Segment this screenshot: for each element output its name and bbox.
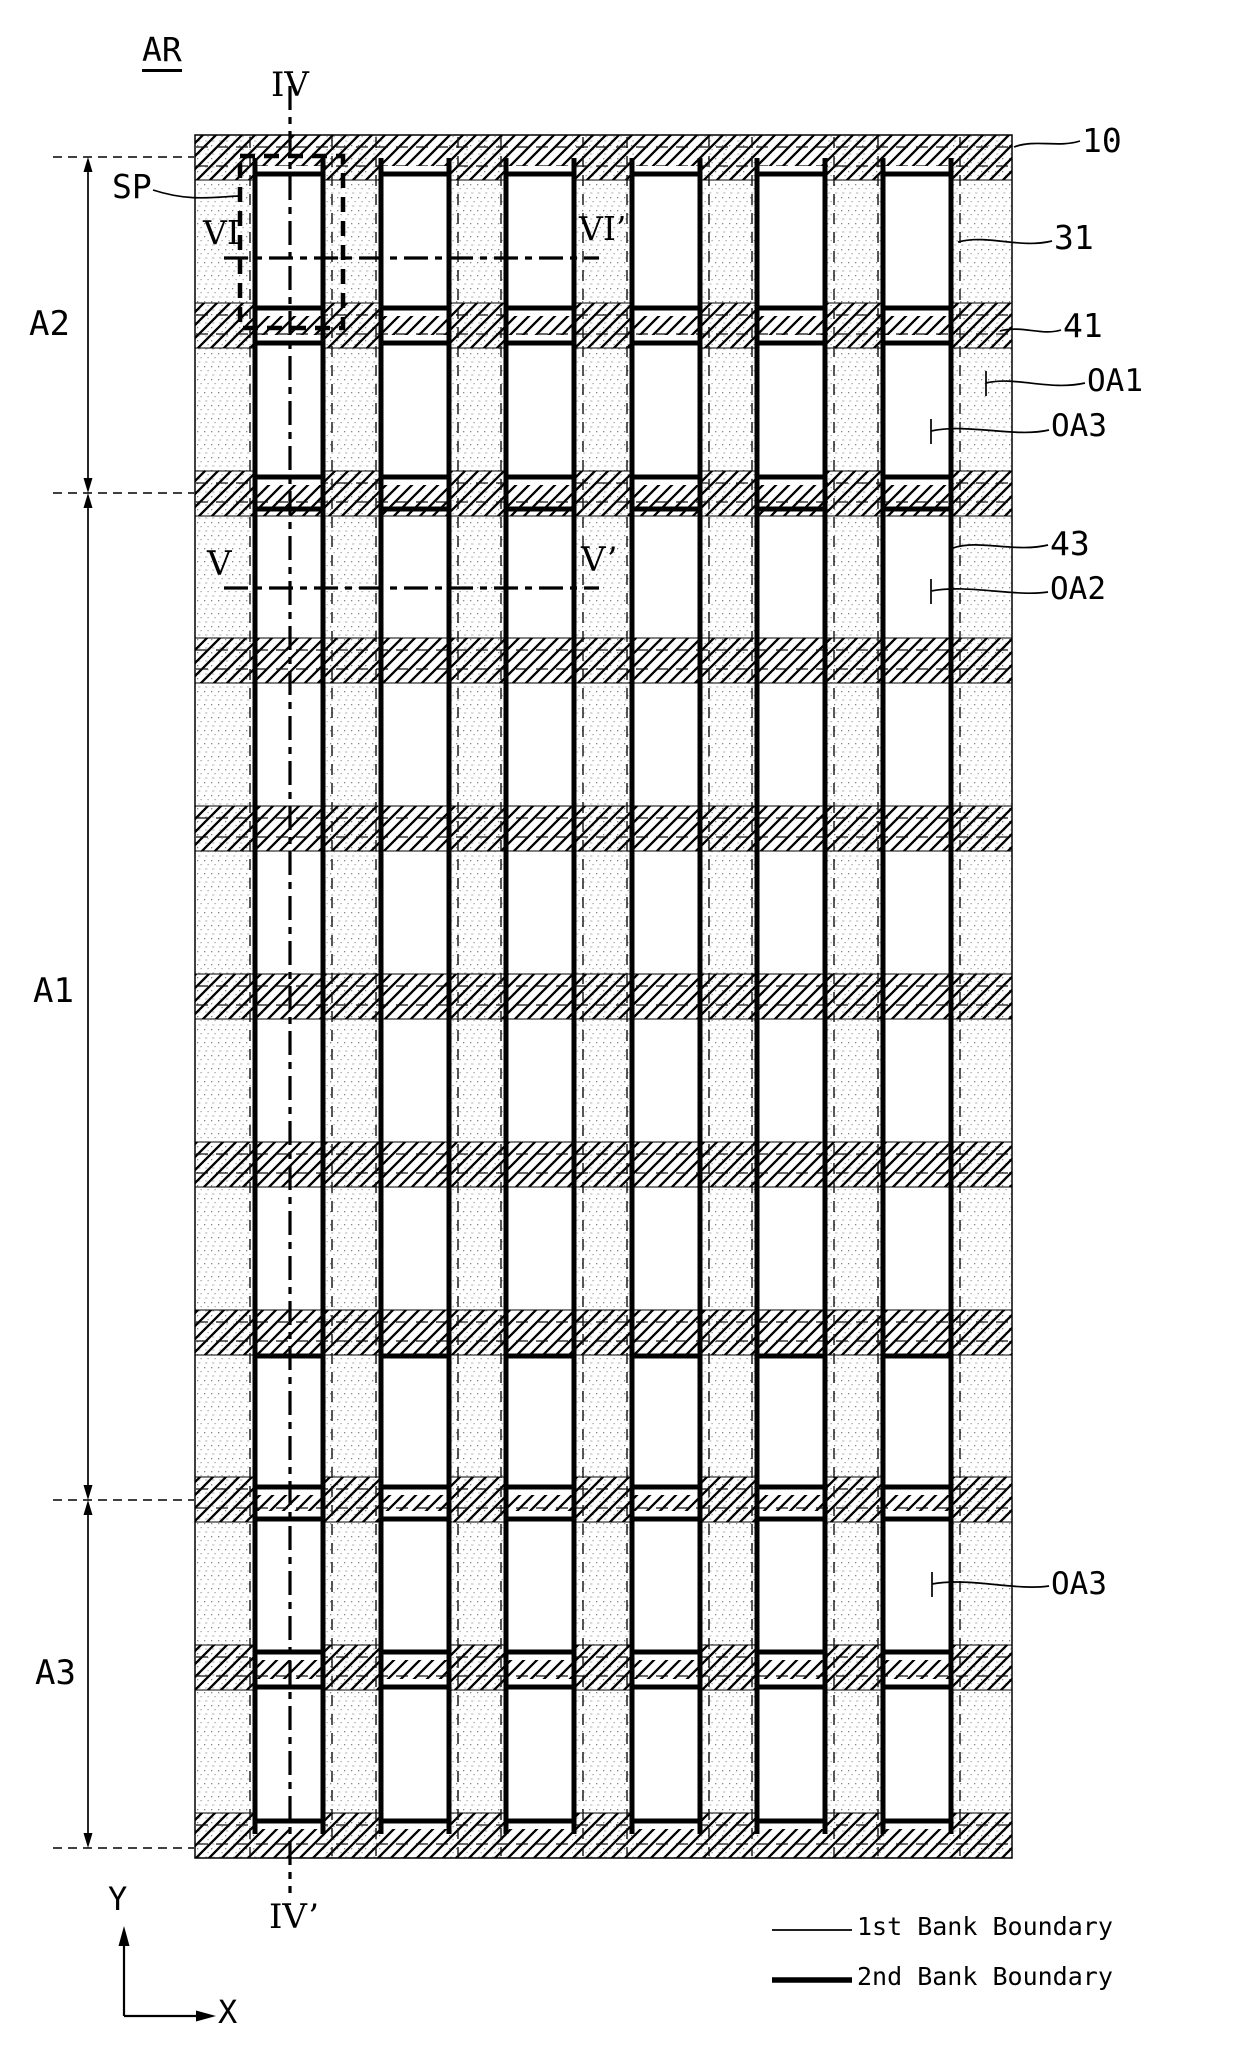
region-label-A1: A1 — [33, 974, 74, 1008]
callout-OA2: OA2 — [1050, 574, 1106, 605]
y-axis-label: Y — [108, 1883, 127, 1915]
region-label-A3: A3 — [35, 1656, 76, 1690]
subpixel-label: SP — [112, 170, 152, 203]
display-area-diagram — [0, 0, 1240, 2068]
leader-10 — [1014, 141, 1080, 147]
section-marker-V: V — [207, 547, 232, 581]
section-marker-IV-prime: IV’ — [269, 1900, 319, 1934]
callout-OA1: OA1 — [1087, 366, 1143, 397]
xy-axis-indicator — [119, 1926, 217, 2022]
callout-10: 10 — [1082, 124, 1122, 157]
x-axis-label: X — [218, 1996, 237, 2028]
callout-31: 31 — [1054, 221, 1094, 254]
y-axis-arrow-icon — [119, 1926, 130, 1946]
section-marker-VI-prime: VI’ — [579, 212, 626, 245]
section-marker-IV: IV — [271, 68, 309, 102]
callout-OA3-lower: OA3 — [1051, 1569, 1107, 1600]
callout-OA3-upper: OA3 — [1051, 411, 1107, 442]
region-dimension-lines — [53, 157, 194, 1848]
region-label-A2: A2 — [29, 307, 70, 341]
legend-item-first-bank: 1st Bank Boundary — [857, 1914, 1113, 1939]
callout-43: 43 — [1050, 527, 1090, 560]
figure-title: AR — [142, 33, 182, 72]
legend-item-second-bank: 2nd Bank Boundary — [857, 1964, 1113, 1989]
patent-figure-page: AR SP IV IV’ VI VI’ V V’ A2 A1 A3 10 31 … — [0, 0, 1240, 2068]
x-axis-arrow-icon — [196, 2011, 216, 2022]
callout-41: 41 — [1063, 309, 1103, 342]
legend-line-samples — [772, 1930, 852, 1980]
section-marker-V-prime: V’ — [581, 543, 618, 577]
section-marker-VI: VI — [203, 216, 240, 249]
